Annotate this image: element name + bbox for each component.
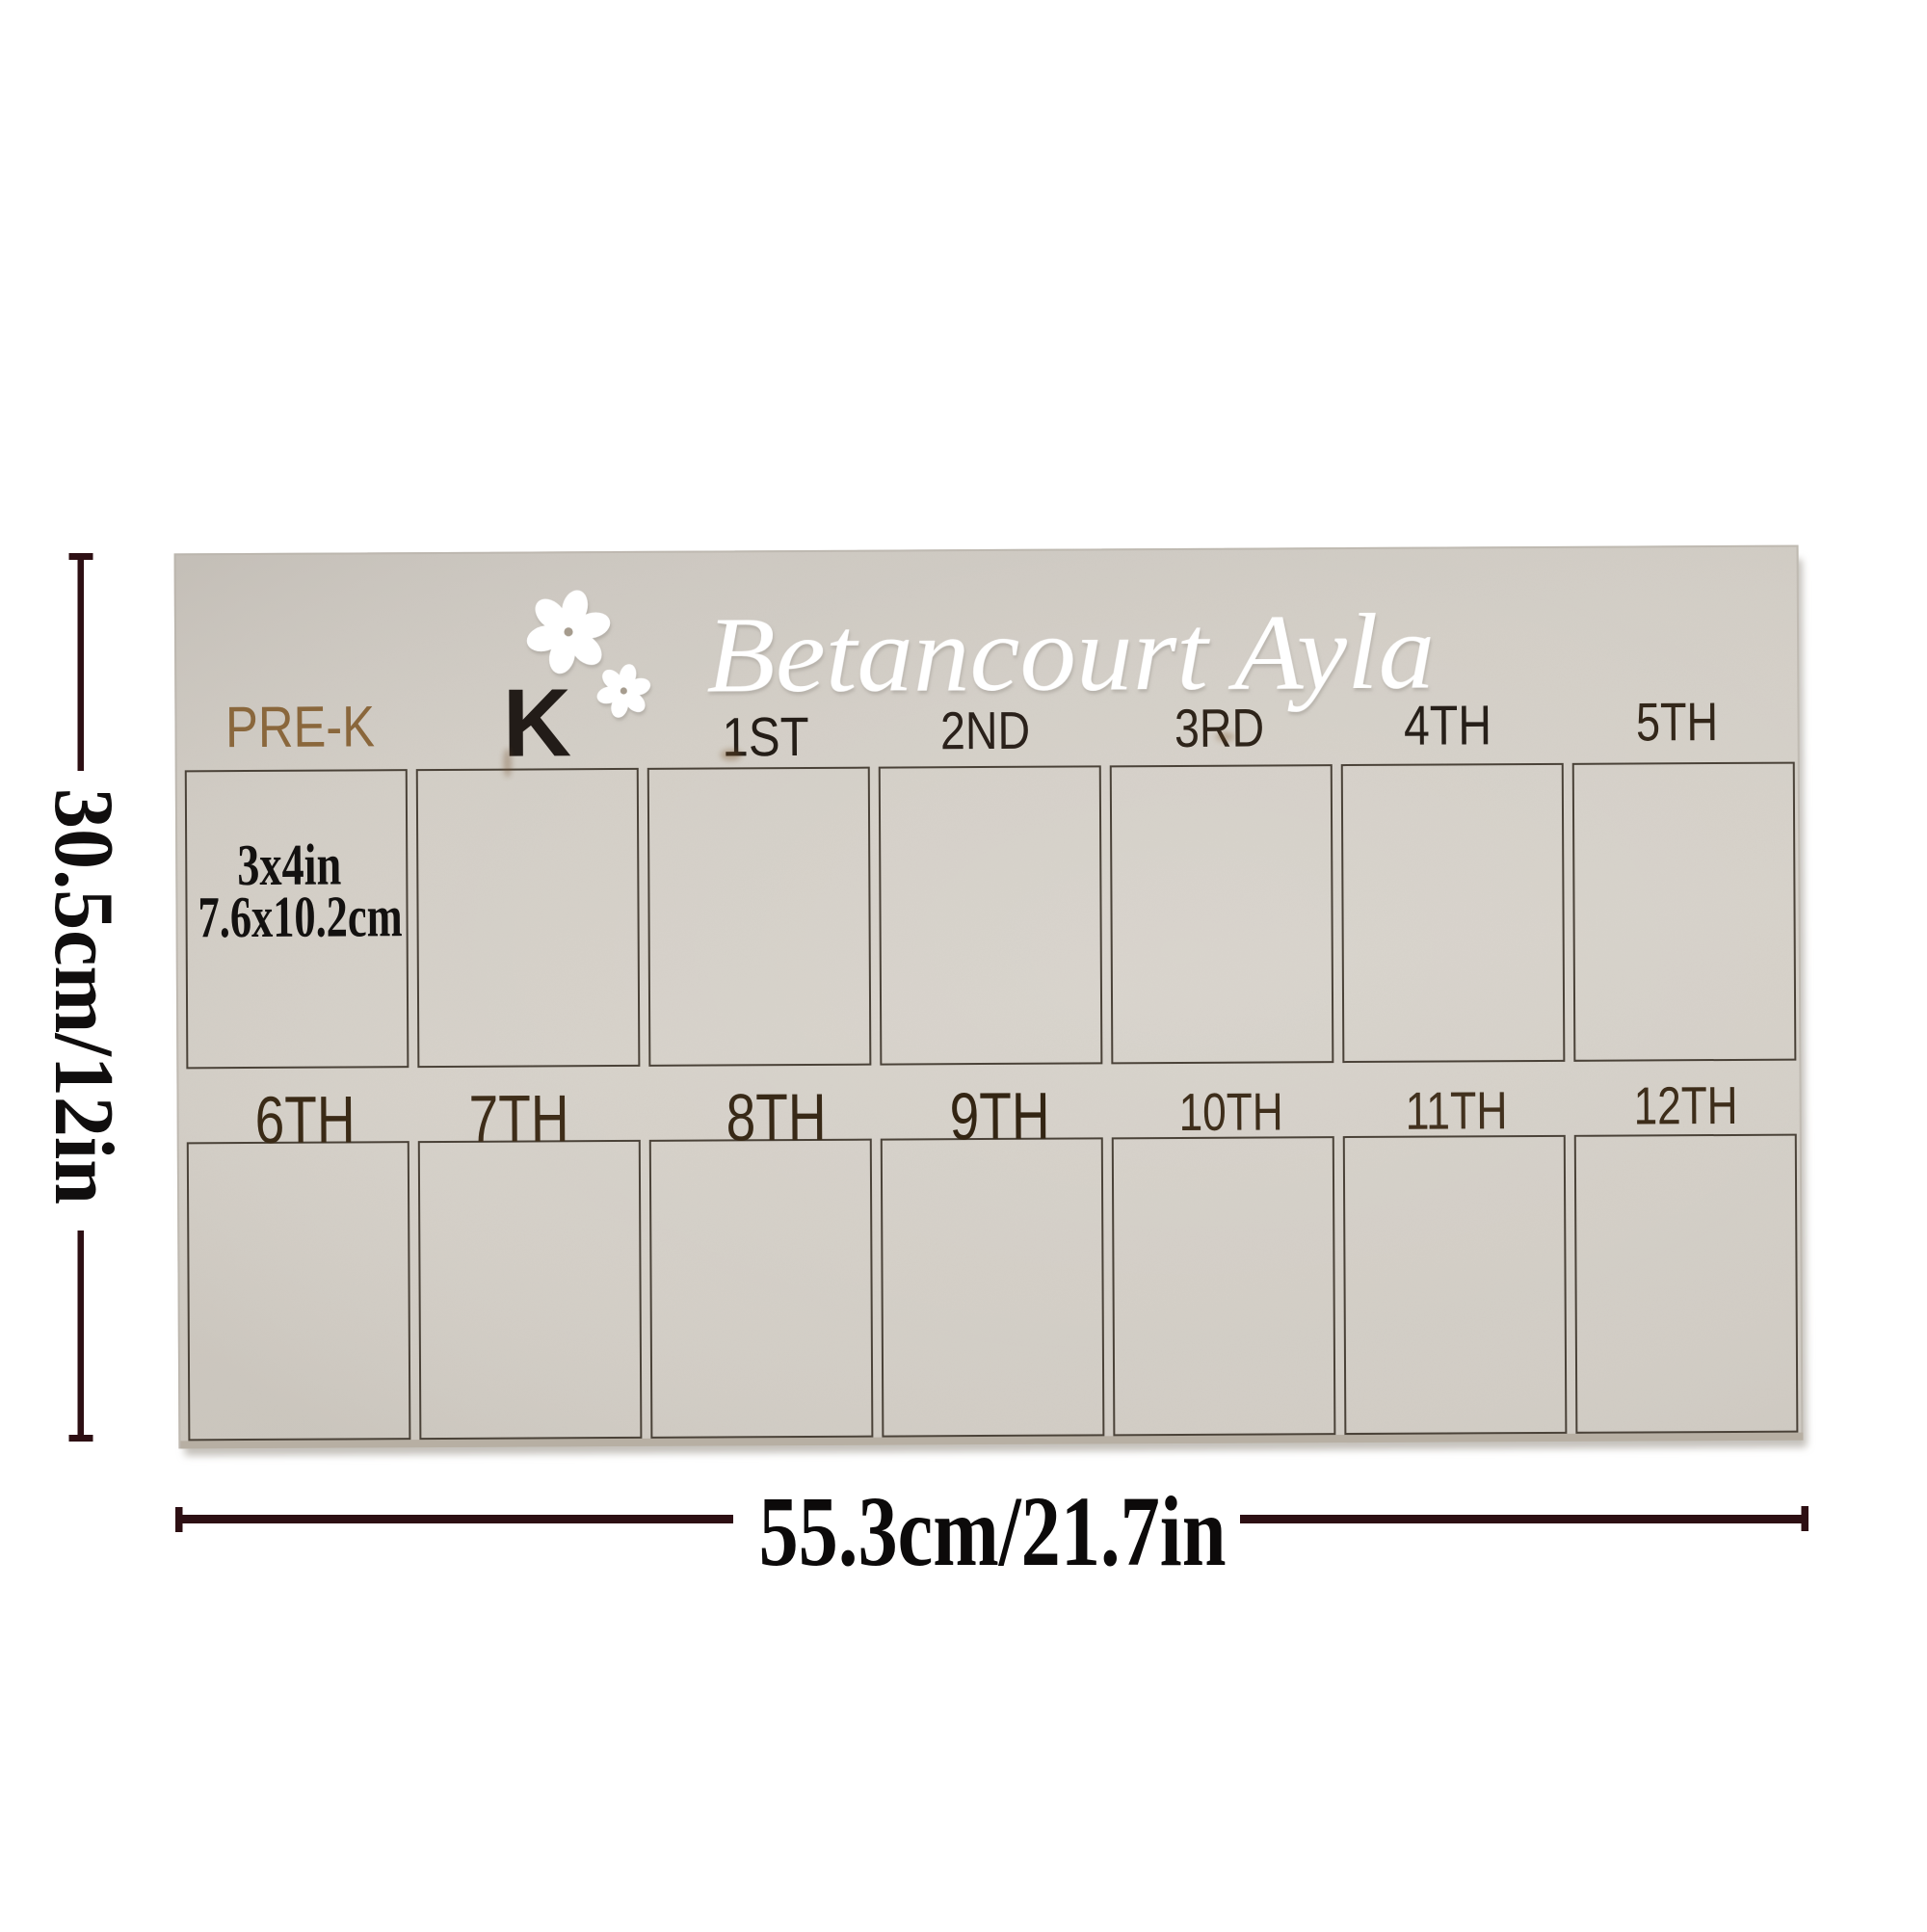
svg-text:PRE-K: PRE-K [225, 694, 375, 759]
svg-text:55.3cm/21.7in: 55.3cm/21.7in [759, 1476, 1227, 1587]
svg-text:K: K [503, 669, 572, 777]
svg-text:7.6x10.2cm: 7.6x10.2cm [198, 885, 402, 950]
svg-text:6TH: 6TH [254, 1082, 355, 1157]
svg-text:5TH: 5TH [1636, 691, 1718, 752]
svg-text:Betancourt Ayla: Betancourt Ayla [706, 593, 1436, 716]
svg-text:12TH: 12TH [1633, 1075, 1737, 1136]
svg-text:8TH: 8TH [726, 1080, 826, 1155]
svg-text:7TH: 7TH [468, 1081, 568, 1156]
svg-text:10TH: 10TH [1178, 1081, 1282, 1142]
svg-text:30.5cm/12in: 30.5cm/12in [37, 788, 130, 1204]
svg-text:9TH: 9TH [949, 1079, 1049, 1154]
svg-text:11TH: 11TH [1405, 1080, 1507, 1141]
